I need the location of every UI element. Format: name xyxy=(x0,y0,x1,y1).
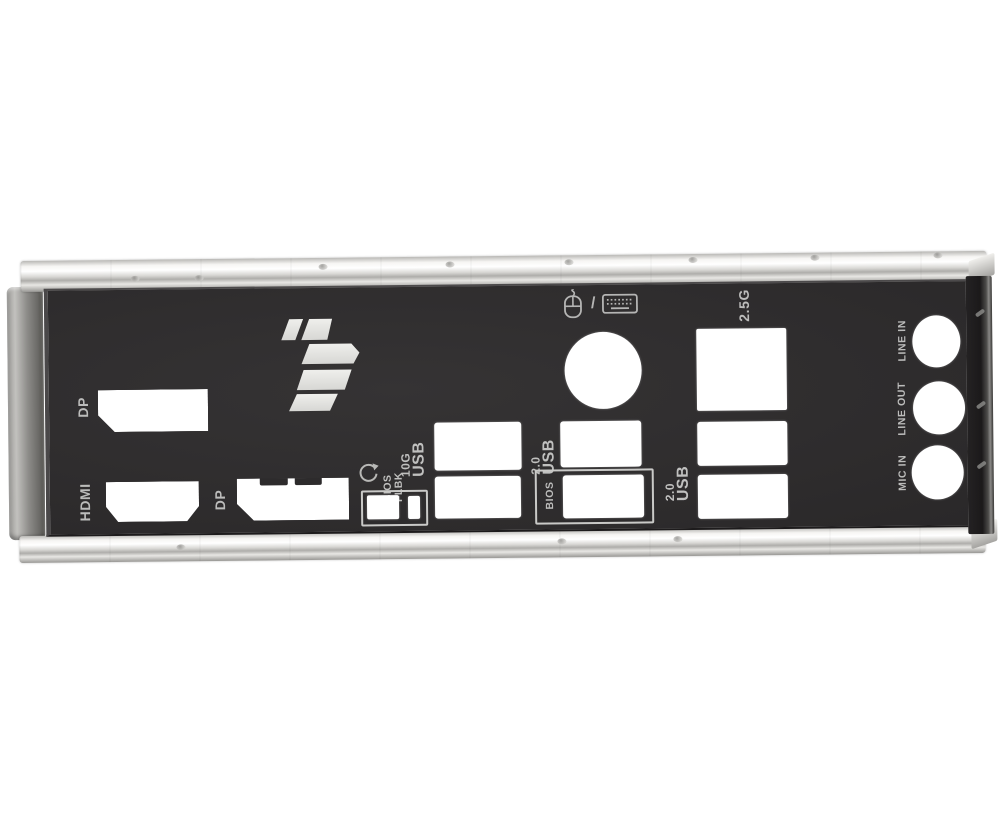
rivet-dimple xyxy=(673,536,682,542)
usb-20-right-label: 2.0USB xyxy=(659,441,696,501)
rivet-dimple xyxy=(131,276,140,282)
hdmi-label: HDMI xyxy=(74,442,95,562)
usb-20-right-bottom-cutout xyxy=(698,474,788,519)
displayport-1-cutout xyxy=(98,389,208,432)
usb-10g-label: 10GUSB xyxy=(395,417,432,477)
lan-cutout xyxy=(696,328,787,411)
usb-20-right-top-cutout xyxy=(697,421,787,466)
rivet-dimple xyxy=(445,261,454,267)
mouse-icon xyxy=(562,289,584,319)
rivet-dimple xyxy=(564,259,573,265)
ps2-separator: / xyxy=(591,295,596,313)
usb-20-left-cutout xyxy=(560,421,641,468)
line-in-cutout xyxy=(912,315,961,367)
rivet-dimple xyxy=(933,252,942,258)
dp2-label: DP xyxy=(209,440,230,560)
tuf-gaming-logo-icon xyxy=(277,313,362,414)
rivet-dimple xyxy=(810,255,819,261)
ps2-icon-row: / xyxy=(562,289,639,320)
line-out-cutout xyxy=(913,381,966,435)
bios-flashback-button-cutout xyxy=(408,496,420,519)
bios-usb-label: BIOS xyxy=(540,435,559,555)
left-mount-tab xyxy=(7,287,46,540)
keyboard-icon xyxy=(602,294,638,314)
usb-10g-bottom-cutout xyxy=(435,476,521,519)
bios-usb-cutout xyxy=(563,474,644,518)
mic-in-cutout xyxy=(911,445,964,500)
mic-in-label: MIC IN xyxy=(894,413,911,533)
displayport-2-cutout xyxy=(237,478,349,521)
rivet-dimple xyxy=(195,275,204,281)
ps2-port-cutout xyxy=(564,332,642,410)
dp2-notch xyxy=(295,478,322,485)
dp2-notch xyxy=(260,478,288,485)
usb-10g-top-cutout xyxy=(434,422,521,471)
io-shield: DP HDMI DP BIOSFLBK 10GUSB / xyxy=(0,0,1000,824)
bios-flashback-usb-cutout xyxy=(367,495,399,519)
rivet-dimple xyxy=(176,544,185,550)
rivet-dimple xyxy=(688,257,697,263)
rivet-dimple xyxy=(319,264,328,270)
hdmi-cutout xyxy=(106,481,199,522)
